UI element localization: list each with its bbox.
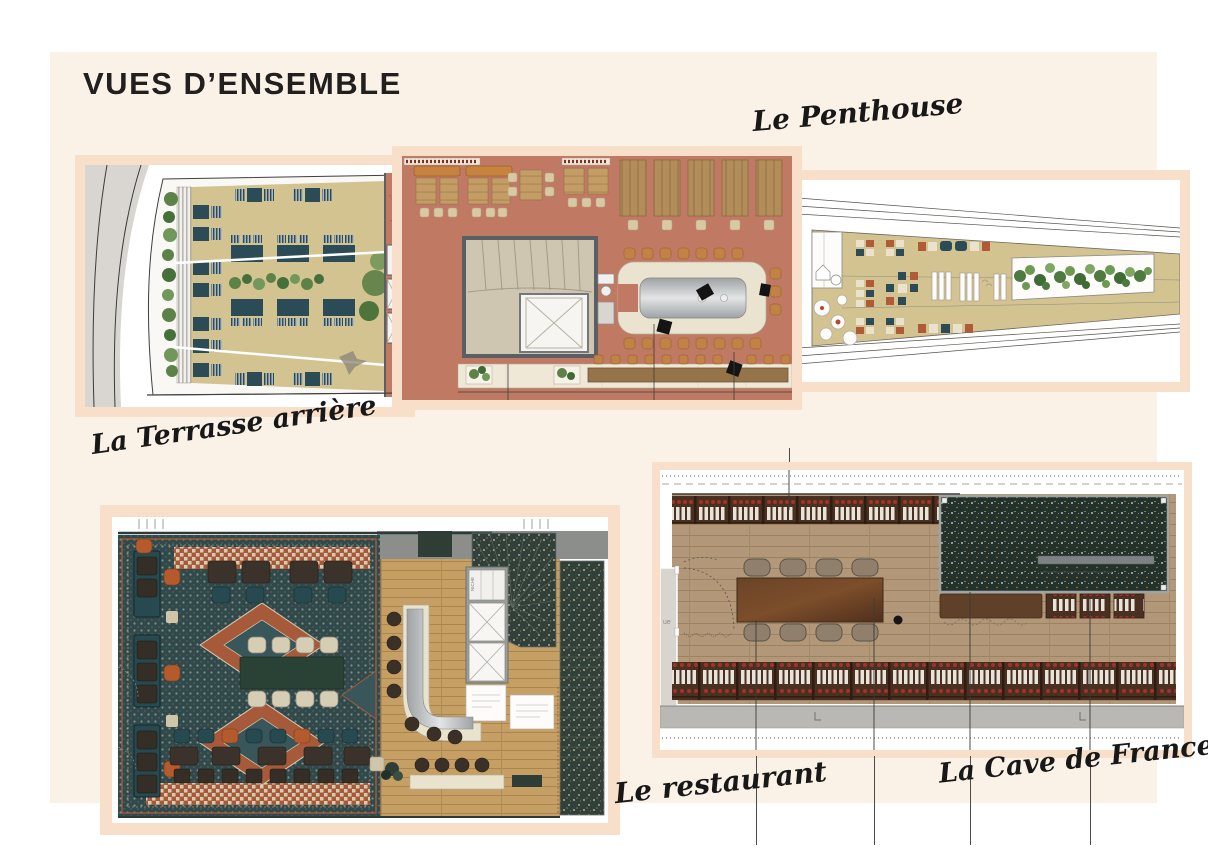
plan-penthouse-deck [788,170,1190,392]
wine-rack-small [1114,594,1144,618]
plan-penthouse-interieur [392,146,802,410]
plan-restaurant: NICHE [100,505,620,835]
sidewalk [660,706,1184,728]
annotation-line [789,448,790,462]
cave-plan-drawing: ue [660,470,1184,750]
wine-racks-bottom [672,662,1176,700]
wine-rack-small [1046,594,1076,618]
wine-racks-top [672,496,940,524]
sun-loungers [932,272,1006,301]
wine-rack-small [1080,594,1110,618]
plan-terrasse-arriere [75,155,415,417]
niche-label: NICHE [470,577,475,591]
annotation-line [874,756,875,845]
terrazzo-stair-right [560,561,604,815]
restaurant-plan-drawing: NICHE [112,517,608,823]
terrasse-plan-drawing [85,165,405,407]
plan-cave-de-francette: ue [652,462,1192,758]
bar-counter [618,262,766,334]
staircase [464,238,596,356]
slide-page: VUES D’ENSEMBLE [0,0,1208,855]
penthouse-plan-drawing [402,156,792,400]
deck-plan-drawing [798,180,1180,382]
deck-structure [812,232,842,288]
deck-planter [1012,254,1154,300]
page-title: VUES D’ENSEMBLE [83,66,402,102]
terrazzo-room [940,496,1168,592]
door-label: ue [663,619,671,626]
